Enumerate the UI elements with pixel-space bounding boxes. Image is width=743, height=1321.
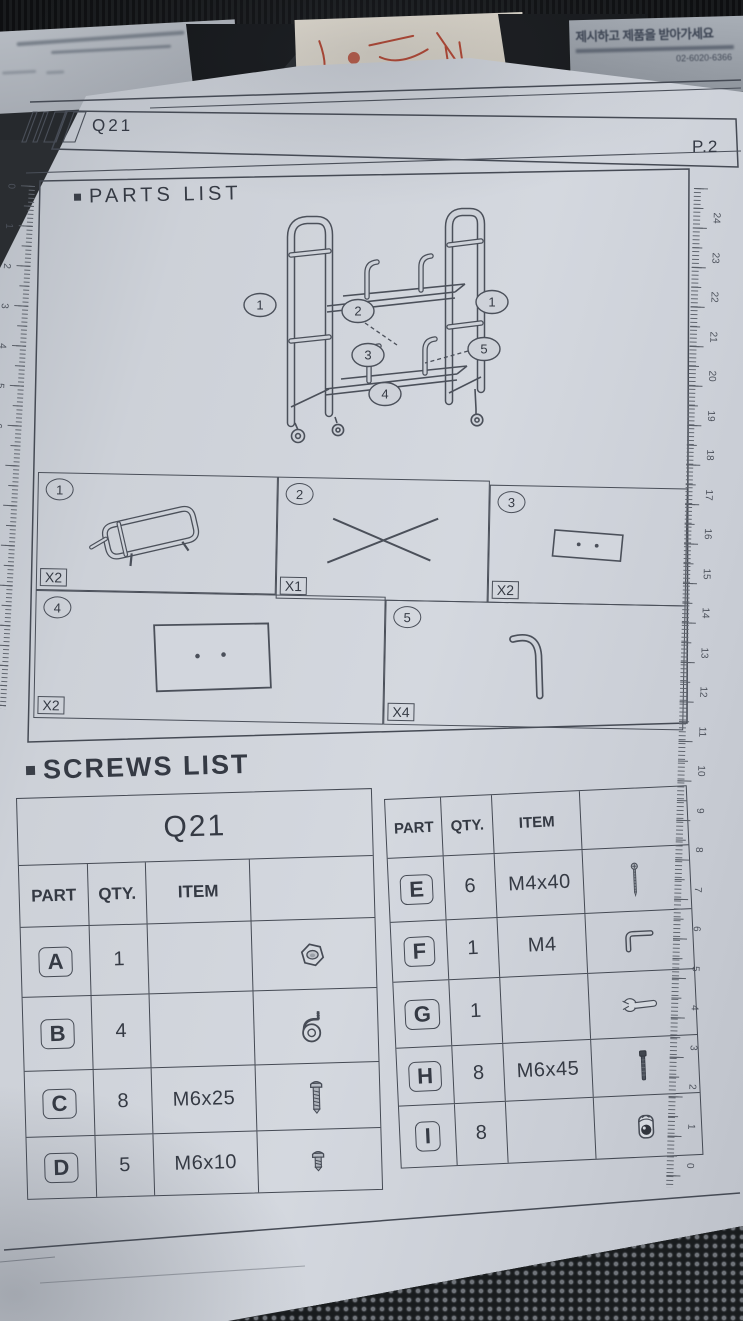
screw-short-icon bbox=[297, 1140, 338, 1181]
part-letter-badge: A bbox=[38, 946, 73, 977]
part-number-circle: 2 bbox=[285, 483, 313, 506]
table-title: Q21 bbox=[17, 789, 373, 865]
part-quantity: 1 bbox=[470, 1000, 482, 1023]
ruler-number: 7 bbox=[692, 881, 703, 897]
column-header bbox=[249, 856, 371, 920]
part-letter-badge: H bbox=[407, 1060, 442, 1092]
part-quantity: 8 bbox=[475, 1122, 487, 1145]
table-cell: 5 bbox=[94, 1134, 154, 1197]
table-cell: 4 bbox=[91, 994, 151, 1069]
table-cell bbox=[251, 918, 373, 990]
part-number-circle: 3 bbox=[497, 491, 525, 514]
receipt-phone-number: 02-6020-6366 bbox=[576, 52, 742, 66]
ruler-number: 0 bbox=[684, 1158, 695, 1174]
column-header: PART bbox=[385, 797, 443, 857]
table-cell: F bbox=[391, 920, 449, 981]
table-cell: 6 bbox=[443, 854, 497, 919]
table-cell: G bbox=[393, 980, 451, 1047]
column-header: ITEM bbox=[491, 791, 582, 853]
table-cell: B bbox=[23, 996, 93, 1071]
ruler-number: 10 bbox=[695, 763, 706, 779]
table-header-row: PARTQTY.ITEM bbox=[19, 855, 375, 927]
ruler-number: 4 bbox=[688, 1000, 699, 1016]
part-quantity: 8 bbox=[117, 1090, 129, 1113]
table-cell: 8 bbox=[454, 1102, 508, 1165]
ruler-number: 5 bbox=[0, 378, 6, 395]
table-cell: M4 bbox=[497, 914, 588, 977]
table-cell bbox=[505, 1098, 596, 1163]
cross-shelf-part-icon bbox=[312, 502, 453, 577]
svg-text:1: 1 bbox=[256, 298, 263, 313]
bolt-dark-icon bbox=[624, 1046, 664, 1086]
table-cell bbox=[582, 845, 688, 913]
ruler-number: 3 bbox=[0, 298, 10, 315]
table-cell bbox=[499, 974, 590, 1043]
table-cell: D bbox=[26, 1136, 96, 1199]
part-quantity: 1 bbox=[467, 937, 479, 960]
ruler-number: 3 bbox=[687, 1039, 698, 1055]
table-cell: A bbox=[21, 926, 91, 997]
table-cell: 8 bbox=[93, 1068, 153, 1135]
parts-grid: 1 X2 2 X1 3 X2 4 X2 5 X4 bbox=[33, 472, 688, 730]
table-cell: H bbox=[396, 1046, 454, 1105]
hook-part-icon bbox=[494, 624, 576, 706]
part-qty-label: X2 bbox=[37, 696, 64, 715]
table-row: B4 bbox=[23, 987, 379, 1071]
part-cell-2: 2 X1 bbox=[276, 477, 490, 603]
part-quantity: 1 bbox=[113, 948, 125, 971]
part-quantity: 5 bbox=[119, 1154, 131, 1177]
part-quantity: 6 bbox=[464, 875, 476, 898]
column-header: QTY. bbox=[87, 862, 147, 925]
table-cell: C bbox=[25, 1070, 95, 1137]
table-cell: 1 bbox=[448, 978, 502, 1045]
part-qty-label: X2 bbox=[40, 568, 67, 587]
ruler-number: 23 bbox=[709, 249, 720, 265]
part-item-spec: M4 bbox=[527, 933, 557, 957]
page-title-model: Q21 bbox=[92, 116, 133, 136]
part-qty-label: X1 bbox=[280, 577, 307, 596]
column-header bbox=[579, 786, 685, 849]
part-letter-badge: E bbox=[400, 873, 434, 904]
part-letter-badge: G bbox=[404, 998, 440, 1030]
part-quantity: 8 bbox=[472, 1062, 484, 1085]
ruler-number: 18 bbox=[704, 447, 715, 463]
table-cell: E bbox=[388, 856, 446, 921]
screws-list-title: SCREWS LIST bbox=[26, 749, 250, 786]
part-letter-badge: D bbox=[44, 1152, 79, 1183]
table-cell: 8 bbox=[451, 1044, 505, 1103]
svg-text:3: 3 bbox=[364, 348, 371, 363]
part-item-spec: M6x25 bbox=[172, 1087, 235, 1112]
ruler-number: 19 bbox=[705, 407, 716, 423]
photo-of-assembly-manual-page: 제시하고 제품을 받아가세요 02-6020-6366 Q21 P.2 PART… bbox=[0, 0, 743, 1321]
barrel-nut-icon bbox=[626, 1106, 666, 1146]
svg-text:2: 2 bbox=[354, 304, 361, 319]
page-number: P.2 bbox=[692, 137, 718, 157]
wrench-icon bbox=[621, 984, 661, 1024]
column-header: PART bbox=[19, 864, 89, 927]
small-board-part-icon bbox=[541, 519, 634, 573]
table-cell: I bbox=[399, 1104, 457, 1167]
part-number-circle: 4 bbox=[43, 596, 71, 619]
ruler-number: 2 bbox=[1, 258, 13, 275]
diagram-callouts: 121354 bbox=[244, 291, 508, 406]
table-cell: M4x40 bbox=[494, 850, 585, 917]
ruler-number: 14 bbox=[699, 605, 710, 621]
table-cell bbox=[256, 1128, 378, 1192]
part-cell-1: 1 X2 bbox=[36, 472, 278, 595]
ruler-number: 4 bbox=[0, 338, 8, 355]
table-cell bbox=[149, 991, 255, 1067]
part-item-spec: M6x45 bbox=[516, 1057, 580, 1083]
table-cell bbox=[147, 921, 253, 993]
part-qty-label: X4 bbox=[387, 703, 414, 722]
table-row: E6M4x40 bbox=[388, 844, 692, 922]
square-bullet-icon bbox=[74, 194, 81, 201]
screws-list-title-text: SCREWS LIST bbox=[43, 749, 250, 786]
part-cell-4: 4 X2 bbox=[33, 590, 385, 725]
ruler-number: 8 bbox=[693, 842, 704, 858]
table-cell: M6x45 bbox=[502, 1040, 592, 1101]
table-row: G1 bbox=[393, 968, 697, 1048]
ruler-number: 17 bbox=[703, 486, 714, 502]
part-item-spec: M4x40 bbox=[508, 871, 572, 897]
part-quantity: 4 bbox=[115, 1020, 127, 1043]
side-frame-part-icon bbox=[81, 490, 233, 577]
ruler-number: 13 bbox=[698, 644, 709, 660]
ruler-number: 21 bbox=[707, 328, 718, 344]
part-item-spec: M6x10 bbox=[174, 1151, 237, 1176]
table-cell: M6x10 bbox=[152, 1131, 258, 1195]
ruler-number: 11 bbox=[696, 723, 707, 739]
ruler-number: 22 bbox=[708, 289, 719, 305]
table-cell: 1 bbox=[446, 918, 500, 979]
part-letter-badge: I bbox=[415, 1120, 440, 1151]
ruler-number: 16 bbox=[702, 526, 713, 542]
ruler-number: 1 bbox=[685, 1118, 696, 1134]
part-letter-badge: C bbox=[42, 1088, 77, 1119]
screw-thin-icon bbox=[615, 859, 655, 899]
column-header: ITEM bbox=[145, 860, 251, 924]
table-row: A1 bbox=[21, 917, 377, 997]
ruler-number: 20 bbox=[706, 368, 717, 384]
ruler-number: 9 bbox=[694, 802, 705, 818]
part-cell-5: 5 X4 bbox=[383, 600, 685, 731]
table-cell: M6x25 bbox=[151, 1065, 257, 1133]
part-cell-3: 3 X2 bbox=[488, 485, 688, 607]
part-qty-label: X2 bbox=[492, 581, 519, 600]
hex-nut-icon bbox=[291, 934, 332, 975]
ruler-number: 0 bbox=[5, 178, 17, 195]
parts-list-title-text: PARTS LIST bbox=[89, 182, 242, 208]
column-header: QTY. bbox=[440, 795, 494, 855]
square-bullet-icon bbox=[26, 766, 35, 775]
screw-long-icon bbox=[295, 1076, 336, 1117]
table-cell: 1 bbox=[89, 924, 149, 995]
board-part-icon bbox=[134, 610, 286, 705]
table-row: C8M6x25 bbox=[25, 1061, 381, 1137]
table-row: D5M6x10 bbox=[26, 1127, 382, 1199]
ruler-number: 12 bbox=[697, 684, 708, 700]
ruler-number: 24 bbox=[710, 210, 721, 226]
part-letter-badge: F bbox=[403, 935, 436, 966]
table-cell bbox=[252, 988, 374, 1064]
screws-table-left: Q21PARTQTY.ITEMA1B4C8M6x25D5M6x10 bbox=[16, 788, 383, 1200]
ruler-number: 15 bbox=[701, 565, 712, 581]
ruler-number: 1 bbox=[3, 218, 15, 235]
allen-key-icon bbox=[618, 921, 658, 961]
caster-icon bbox=[293, 1006, 334, 1047]
receipt-korean-text: 제시하고 제품을 받아가세요 bbox=[575, 22, 741, 45]
svg-text:4: 4 bbox=[381, 387, 388, 402]
svg-text:1: 1 bbox=[488, 295, 495, 310]
ruler-number: 6 bbox=[691, 921, 702, 937]
cart-assembly-diagram: 121354 bbox=[225, 193, 535, 448]
part-letter-badge: B bbox=[40, 1018, 75, 1049]
parts-list-title: PARTS LIST bbox=[74, 182, 242, 209]
part-number-circle: 5 bbox=[393, 606, 421, 629]
ruler-number: 5 bbox=[689, 960, 700, 976]
part-number-circle: 1 bbox=[45, 478, 73, 501]
ruler-number: 2 bbox=[686, 1079, 697, 1095]
screws-table-right: PARTQTY.ITEME6M4x40F1M4G1H8M6x45I8 bbox=[384, 785, 703, 1168]
svg-text:5: 5 bbox=[480, 342, 487, 357]
table-cell bbox=[255, 1062, 377, 1130]
